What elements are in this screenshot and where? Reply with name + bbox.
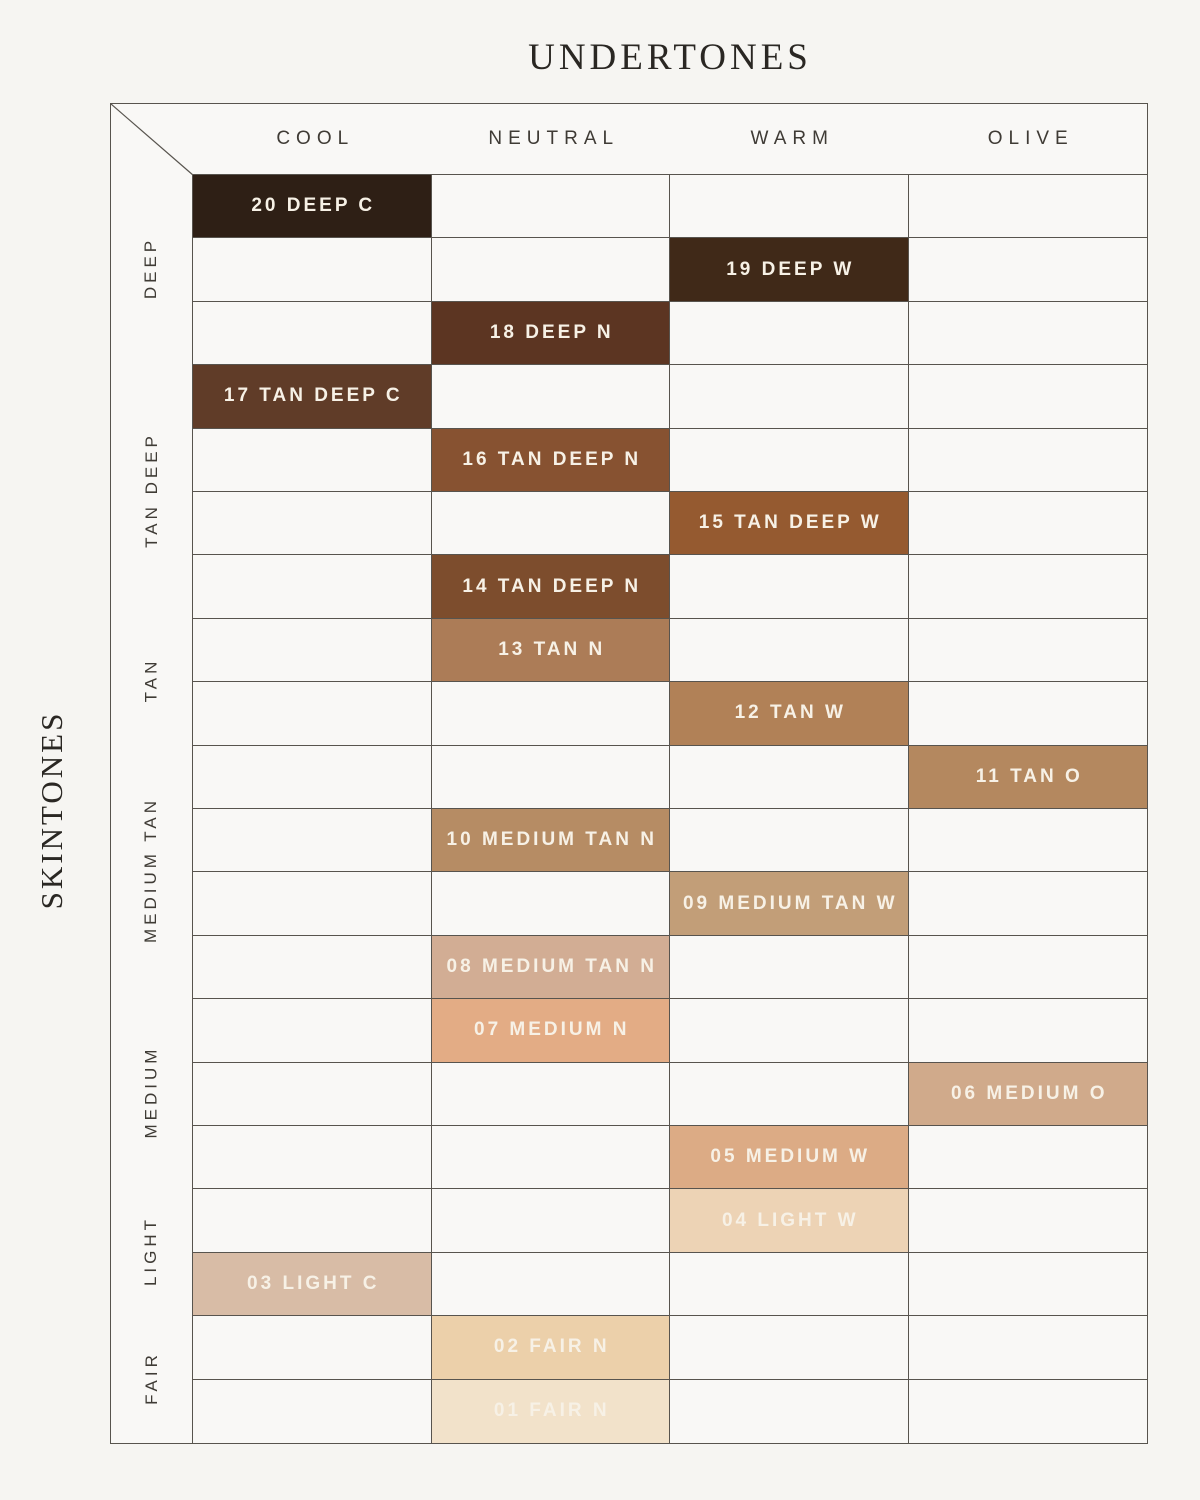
empty-cell xyxy=(670,302,909,365)
group-label-medium-tan: MEDIUM TAN xyxy=(111,746,192,1000)
empty-cell xyxy=(193,999,432,1062)
shade-cell-01-fair-n: 01 FAIR N xyxy=(432,1380,671,1443)
empty-cell xyxy=(193,1316,432,1379)
empty-cell xyxy=(432,1126,671,1189)
column-header-warm: WARM xyxy=(670,104,909,174)
empty-cell xyxy=(909,175,1148,238)
empty-cell xyxy=(909,1189,1148,1252)
shade-cell-20-deep-c: 20 DEEP C xyxy=(193,175,432,238)
column-header-neutral: NEUTRAL xyxy=(432,104,671,174)
empty-cell xyxy=(909,1316,1148,1379)
empty-cell xyxy=(909,619,1148,682)
shade-cell-15-tan-deep-w: 15 TAN DEEP W xyxy=(670,492,909,555)
empty-cell xyxy=(193,492,432,555)
group-label-deep: DEEP xyxy=(111,175,192,365)
shade-cell-08-medium-tan-n: 08 MEDIUM TAN N xyxy=(432,936,671,999)
empty-cell xyxy=(432,492,671,555)
shade-cell-16-tan-deep-n: 16 TAN DEEP N xyxy=(432,429,671,492)
skintone-group-column: DEEP TAN DEEP TAN MEDIUM TAN MEDIUM LIGH… xyxy=(111,175,193,1443)
empty-cell xyxy=(670,1380,909,1443)
group-label-tan: TAN xyxy=(111,619,192,746)
empty-cell xyxy=(432,365,671,428)
empty-cell xyxy=(909,682,1148,745)
empty-cell xyxy=(909,555,1148,618)
shade-cell-09-medium-tan-w: 09 MEDIUM TAN W xyxy=(670,872,909,935)
shade-cell-04-light-w: 04 LIGHT W xyxy=(670,1189,909,1252)
empty-cell xyxy=(670,1063,909,1126)
empty-cell xyxy=(909,238,1148,301)
empty-cell xyxy=(432,238,671,301)
shade-cell-13-tan-n: 13 TAN N xyxy=(432,619,671,682)
empty-cell xyxy=(670,999,909,1062)
empty-cell xyxy=(432,1253,671,1316)
empty-cell xyxy=(670,746,909,809)
column-header-olive: OLIVE xyxy=(909,104,1148,174)
empty-cell xyxy=(193,746,432,809)
empty-cell xyxy=(193,936,432,999)
empty-cell xyxy=(909,1126,1148,1189)
column-header-cool: COOL xyxy=(193,104,432,174)
empty-cell xyxy=(432,682,671,745)
empty-cell xyxy=(432,746,671,809)
shade-cell-17-tan-deep-c: 17 TAN DEEP C xyxy=(193,365,432,428)
group-label-light: LIGHT xyxy=(111,1189,192,1316)
empty-cell xyxy=(909,492,1148,555)
empty-cell xyxy=(432,872,671,935)
empty-cell xyxy=(670,555,909,618)
shade-cell-12-tan-w: 12 TAN W xyxy=(670,682,909,745)
empty-cell xyxy=(909,872,1148,935)
empty-cell xyxy=(432,175,671,238)
shade-cell-07-medium-n: 07 MEDIUM N xyxy=(432,999,671,1062)
shade-cell-06-medium-o: 06 MEDIUM O xyxy=(909,1063,1148,1126)
empty-cell xyxy=(909,365,1148,428)
empty-cell xyxy=(193,872,432,935)
empty-cell xyxy=(670,1316,909,1379)
shade-cell-14-tan-deep-n: 14 TAN DEEP N xyxy=(432,555,671,618)
empty-cell xyxy=(193,619,432,682)
empty-cell xyxy=(193,555,432,618)
undertone-header-row: COOL NEUTRAL WARM OLIVE xyxy=(193,104,1147,175)
empty-cell xyxy=(193,238,432,301)
shade-cell-11-tan-o: 11 TAN O xyxy=(909,746,1148,809)
empty-cell xyxy=(670,175,909,238)
empty-cell xyxy=(909,809,1148,872)
group-label-fair: FAIR xyxy=(111,1316,192,1443)
empty-cell xyxy=(670,365,909,428)
shade-cell-02-fair-n: 02 FAIR N xyxy=(432,1316,671,1379)
empty-cell xyxy=(909,429,1148,492)
empty-cell xyxy=(193,1063,432,1126)
page-title: UNDERTONES xyxy=(192,36,1148,79)
empty-cell xyxy=(193,1126,432,1189)
empty-cell xyxy=(909,1253,1148,1316)
empty-cell xyxy=(909,302,1148,365)
group-label-medium: MEDIUM xyxy=(111,999,192,1189)
empty-cell xyxy=(909,1380,1148,1443)
empty-cell xyxy=(670,429,909,492)
empty-cell xyxy=(193,809,432,872)
empty-cell xyxy=(432,1189,671,1252)
empty-cell xyxy=(193,1380,432,1443)
empty-cell xyxy=(909,999,1148,1062)
empty-cell xyxy=(193,1189,432,1252)
shade-grid: 20 DEEP C 19 DEEP W 18 DEEP N 17 TAN DEE… xyxy=(193,175,1147,1443)
shade-cell-05-medium-w: 05 MEDIUM W xyxy=(670,1126,909,1189)
empty-cell xyxy=(670,1253,909,1316)
empty-cell xyxy=(432,1063,671,1126)
shade-cell-03-light-c: 03 LIGHT C xyxy=(193,1253,432,1316)
empty-cell xyxy=(670,619,909,682)
empty-cell xyxy=(193,429,432,492)
empty-cell xyxy=(670,809,909,872)
corner-diagonal-line xyxy=(111,104,194,176)
group-label-tan-deep: TAN DEEP xyxy=(111,365,192,619)
empty-cell xyxy=(670,936,909,999)
shade-cell-19-deep-w: 19 DEEP W xyxy=(670,238,909,301)
empty-cell xyxy=(193,682,432,745)
skintones-axis-label: SKINTONES xyxy=(34,711,70,910)
empty-cell xyxy=(193,302,432,365)
shade-cell-18-deep-n: 18 DEEP N xyxy=(432,302,671,365)
shade-matrix-table: COOL NEUTRAL WARM OLIVE DEEP TAN DEEP TA… xyxy=(110,103,1148,1444)
empty-cell xyxy=(909,936,1148,999)
shade-cell-10-medium-tan-n: 10 MEDIUM TAN N xyxy=(432,809,671,872)
